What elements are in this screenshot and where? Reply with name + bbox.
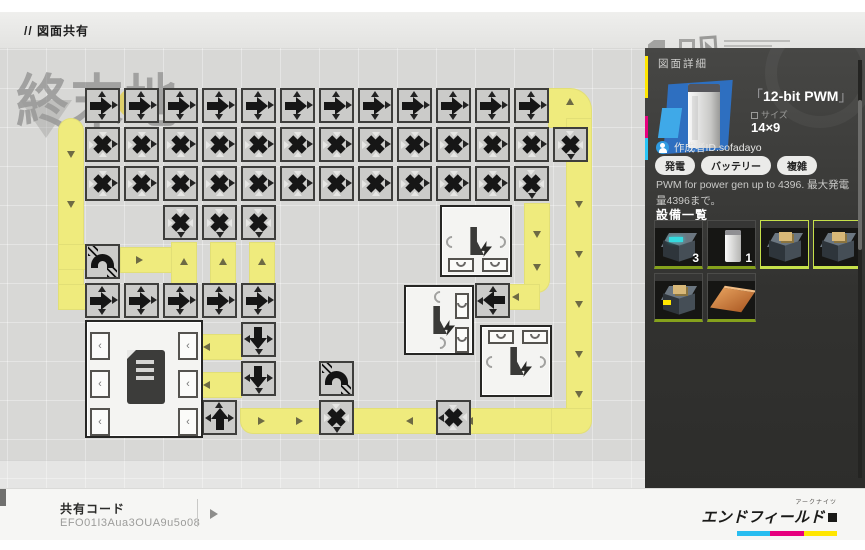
tile-junction-down: [514, 166, 549, 201]
machine-semicircle-mark: [532, 354, 549, 371]
tile-junction-down: [241, 205, 276, 240]
battery-tower-icon: [725, 230, 741, 262]
deco-line: [724, 45, 772, 47]
belt-arrow-right: [296, 417, 303, 425]
tile-junction-right: [280, 166, 315, 201]
tile-junction-right: [358, 166, 393, 201]
tile-belt-bridge: [319, 361, 354, 396]
cross-glyph: [243, 168, 274, 199]
cross-glyph: [438, 168, 469, 199]
cross-glyph: [204, 129, 235, 160]
tag-list: 発電バッテリー複雑: [655, 156, 817, 175]
tile-junction-down: [202, 205, 237, 240]
blueprint-share-screen: // 図面共有 終末地 ‹‹‹‹‹‹ 図面詳細 「12-bit PWM」 サイズ…: [0, 0, 865, 550]
tile-junction-right: [436, 166, 471, 201]
tag-pill: 発電: [655, 156, 695, 175]
cross-glyph: [165, 168, 196, 199]
generator-cyan-glow: [669, 237, 683, 242]
tile-splitter-right: [241, 283, 276, 318]
conveyor-belt: [120, 247, 176, 273]
panel-title: 図面詳細: [658, 56, 708, 71]
generator-port: [455, 327, 469, 353]
split-glyph: [126, 90, 157, 121]
relay-icon-right: [785, 240, 801, 261]
cross-glyph: [282, 168, 313, 199]
tile-junction-right: [163, 166, 198, 201]
split-glyph: [243, 363, 274, 394]
generator-port: [448, 258, 474, 272]
tile-splitter-up: [202, 400, 237, 435]
conveyor-belt: [548, 408, 592, 434]
creator-row: 作成者ID.sofadayo: [656, 140, 762, 155]
cross-glyph: [516, 168, 547, 199]
split-glyph: [282, 90, 313, 121]
storage-core-fold: [127, 350, 136, 359]
cross-glyph: [282, 129, 313, 160]
power-generator-machine: [480, 325, 552, 397]
tile-splitter-right: [124, 283, 159, 318]
tile-junction-right: [85, 166, 120, 201]
belt-arrow-up: [566, 98, 574, 105]
cross-glyph: [165, 207, 196, 238]
conveyor-belt: [524, 203, 550, 293]
deco-line: [724, 40, 790, 42]
tile-splitter-right: [124, 88, 159, 123]
equipment-card-label-band: [708, 274, 755, 281]
cross-glyph: [321, 129, 352, 160]
split-glyph: [243, 324, 274, 355]
belt-arrow-up: [258, 258, 266, 265]
page-title: // 図面共有: [24, 22, 89, 39]
tile-junction-right: [397, 166, 432, 201]
generator-port: [455, 293, 469, 319]
cross-glyph: [204, 207, 235, 238]
storage-port-right: ‹: [178, 370, 198, 398]
share-code-label: 共有コード: [60, 500, 125, 517]
tile-junction-right: [475, 166, 510, 201]
share-code-value: EFO01I3Aua3OUA9u5o08: [60, 517, 200, 529]
belt-arrow-down: [575, 201, 583, 208]
equipment-card-label-band: [655, 274, 702, 281]
split-glyph: [243, 90, 274, 121]
cross-glyph: [321, 402, 352, 433]
tile-junction-right: [202, 127, 237, 162]
relay-icon-right: [679, 293, 695, 314]
tile-splitter-right: [85, 88, 120, 123]
tile-junction-right: [319, 127, 354, 162]
split-glyph: [243, 285, 274, 316]
blueprint-detail-panel: 図面詳細 「12-bit PWM」 サイズ 14×9 作成者ID.sofaday…: [645, 48, 865, 490]
relay-icon-right: [838, 240, 854, 261]
yellow-stripe: [645, 56, 648, 98]
tile-junction-down: [163, 205, 198, 240]
tile-splitter-right: [85, 283, 120, 318]
blueprint-size-value: 14×9: [751, 120, 780, 135]
thumbnail-blue-shape-small: [658, 108, 682, 138]
belt-arrow-down: [67, 201, 75, 208]
split-glyph: [87, 285, 118, 316]
generator-port: [482, 258, 508, 272]
tile-junction-right: [241, 166, 276, 201]
power-generator-machine: [404, 285, 474, 355]
tile-junction-down: [553, 127, 588, 162]
bottom-bar: 共有コード EFO01I3Aua3OUA9u5o08 アークナイツ エンドフィー…: [0, 488, 865, 540]
core-bar: [136, 376, 154, 380]
equipment-battery[interactable]: 1: [707, 220, 756, 269]
storage-port-left: ‹: [90, 370, 110, 398]
belt-arrow-down: [575, 391, 583, 398]
cross-glyph: [438, 129, 469, 160]
tile-belt-bridge: [85, 244, 120, 279]
storage-port-right: ‹: [178, 408, 198, 436]
bridge-glyph: [87, 246, 118, 277]
machine-semicircle-mark: [432, 289, 449, 306]
tile-junction-right: [397, 127, 432, 162]
equipment-grid: 31: [654, 220, 865, 322]
equipment-card-label-band: [708, 221, 755, 228]
split-glyph: [477, 90, 508, 121]
tile-junction-right: [163, 127, 198, 162]
relay-yellow-tag: [663, 300, 671, 305]
cross-glyph: [165, 129, 196, 160]
belt-arrow-up: [219, 258, 227, 265]
creator-id: 作成者ID.sofadayo: [674, 142, 762, 154]
split-glyph: [204, 402, 235, 433]
generator-port: [522, 330, 548, 344]
cross-glyph: [87, 168, 118, 199]
tile-junction-right: [358, 127, 393, 162]
split-glyph: [204, 285, 235, 316]
cross-glyph: [360, 129, 391, 160]
storage-port-right: ‹: [178, 332, 198, 360]
cross-glyph: [243, 129, 274, 160]
cross-glyph: [126, 129, 157, 160]
brand-ruby-text: アークナイツ: [701, 497, 837, 506]
machine-semicircle-mark: [484, 354, 501, 371]
cross-glyph: [477, 168, 508, 199]
relay-chip: [779, 232, 792, 241]
tile-junction-left: [436, 400, 471, 435]
storage-port-left: ‹: [90, 332, 110, 360]
machine-semicircle-mark: [432, 335, 449, 352]
brand-name-text: エンドフィールド: [701, 506, 837, 527]
sidebar-scrollbar-thumb[interactable]: [858, 100, 862, 250]
split-glyph: [516, 90, 547, 121]
tile-junction-right: [202, 166, 237, 201]
brand-color-segment: [737, 531, 770, 536]
belt-arrow-left: [203, 381, 210, 389]
tile-junction-right: [280, 127, 315, 162]
power-generator-machine: [440, 205, 512, 277]
belt-arrow-up: [180, 258, 188, 265]
equipment-count: 1: [745, 251, 752, 265]
bottom-bar-tick: [0, 489, 6, 506]
belt-arrow-left: [203, 343, 210, 351]
tile-splitter-right: [202, 88, 237, 123]
cross-glyph: [555, 129, 586, 160]
equipment-conveyor-plate[interactable]: [707, 273, 756, 322]
tile-splitter-right: [163, 283, 198, 318]
tile-splitter-right: [241, 88, 276, 123]
tile-junction-right: [124, 166, 159, 201]
tile-splitter-right: [436, 88, 471, 123]
brand-cmy-bar: [737, 531, 837, 536]
split-glyph: [360, 90, 391, 121]
cyan-stripe: [645, 138, 648, 160]
equipment-relay[interactable]: [760, 220, 809, 269]
tile-splitter-down: [241, 361, 276, 396]
belt-arrow-down: [533, 264, 541, 271]
machine-semicircle-mark: [444, 234, 461, 251]
tile-splitter-right: [397, 88, 432, 123]
belt-arrow-down: [67, 151, 75, 158]
thumbnail-battery-tower: [688, 84, 720, 148]
canvas-floor-edge: [0, 460, 645, 488]
cross-glyph: [399, 168, 430, 199]
cross-glyph: [477, 129, 508, 160]
tile-splitter-down: [241, 322, 276, 357]
brand-color-segment: [804, 531, 837, 536]
size-icon: [751, 112, 758, 119]
split-glyph: [399, 90, 430, 121]
tile-junction-right: [514, 127, 549, 162]
belt-arrow-down: [533, 231, 541, 238]
belt-arrow-left: [406, 417, 413, 425]
blueprint-description: PWM for power gen up to 4396. 最大発電量4396ま…: [656, 178, 856, 210]
equipment-generator[interactable]: 3: [654, 220, 703, 269]
brand-logo: アークナイツ エンドフィールド: [701, 497, 837, 536]
core-bar: [136, 360, 154, 364]
tile-junction-right: [241, 127, 276, 162]
cross-glyph: [126, 168, 157, 199]
tile-splitter-right: [358, 88, 393, 123]
equipment-card-label-band: [761, 221, 808, 228]
tile-junction-right: [475, 127, 510, 162]
tag-pill: バッテリー: [701, 156, 771, 175]
equipment-relay[interactable]: [813, 220, 862, 269]
relay-chip: [832, 232, 845, 241]
divider: [197, 499, 198, 527]
brand-color-segment: [770, 531, 803, 536]
split-glyph: [438, 90, 469, 121]
tile-splitter-left: [475, 283, 510, 318]
split-glyph: [321, 90, 352, 121]
equipment-card-label-band: [814, 221, 861, 228]
blueprint-title: 「12-bit PWM」: [749, 86, 852, 106]
tile-splitter-right: [202, 283, 237, 318]
belt-arrow-down: [575, 251, 583, 258]
cross-glyph: [516, 129, 547, 160]
equipment-relay-alt[interactable]: [654, 273, 703, 322]
storage-port-left: ‹: [90, 408, 110, 436]
storage-machine: ‹‹‹‹‹‹: [85, 320, 203, 438]
split-glyph: [126, 285, 157, 316]
top-bar: // 図面共有: [0, 12, 865, 48]
cross-glyph: [399, 129, 430, 160]
tile-splitter-right: [163, 88, 198, 123]
tile-junction-right: [319, 166, 354, 201]
cross-glyph: [204, 168, 235, 199]
creator-avatar: [656, 141, 669, 154]
conveyor-belt: [240, 408, 552, 434]
cross-glyph: [360, 168, 391, 199]
split-glyph: [87, 90, 118, 121]
tile-junction-down: [319, 400, 354, 435]
bridge-glyph: [321, 363, 352, 394]
conveyor-belt: [58, 118, 84, 310]
tile-splitter-right: [475, 88, 510, 123]
relay-chip: [673, 285, 686, 294]
equipment-card-label-band: [655, 221, 702, 228]
generator-port: [488, 330, 514, 344]
copper-plate-icon: [710, 286, 756, 313]
belt-arrow-right: [258, 417, 265, 425]
tile-splitter-right: [280, 88, 315, 123]
tile-junction-right: [436, 127, 471, 162]
belt-arrow-right: [136, 256, 143, 264]
magenta-stripe: [645, 116, 648, 138]
tag-pill: 複雑: [777, 156, 817, 175]
split-glyph: [204, 90, 235, 121]
cross-glyph: [438, 402, 469, 433]
tile-splitter-right: [319, 88, 354, 123]
belt-arrow-down: [575, 351, 583, 358]
cross-glyph: [243, 207, 274, 238]
share-code-arrow-button[interactable]: [210, 509, 218, 519]
split-glyph: [477, 285, 508, 316]
cross-glyph: [321, 168, 352, 199]
belt-arrow-left: [512, 293, 519, 301]
split-glyph: [165, 285, 196, 316]
belt-arrow-down: [575, 301, 583, 308]
cross-glyph: [87, 129, 118, 160]
core-bar: [136, 368, 154, 372]
factory-blueprint-canvas[interactable]: 終末地 ‹‹‹‹‹‹: [0, 48, 645, 488]
tile-junction-right: [124, 127, 159, 162]
tile-junction-right: [85, 127, 120, 162]
equipment-count: 3: [692, 251, 699, 265]
tile-splitter-right: [514, 88, 549, 123]
conveyor-belt: [566, 118, 592, 414]
split-glyph: [165, 90, 196, 121]
machine-semicircle-mark: [492, 234, 509, 251]
